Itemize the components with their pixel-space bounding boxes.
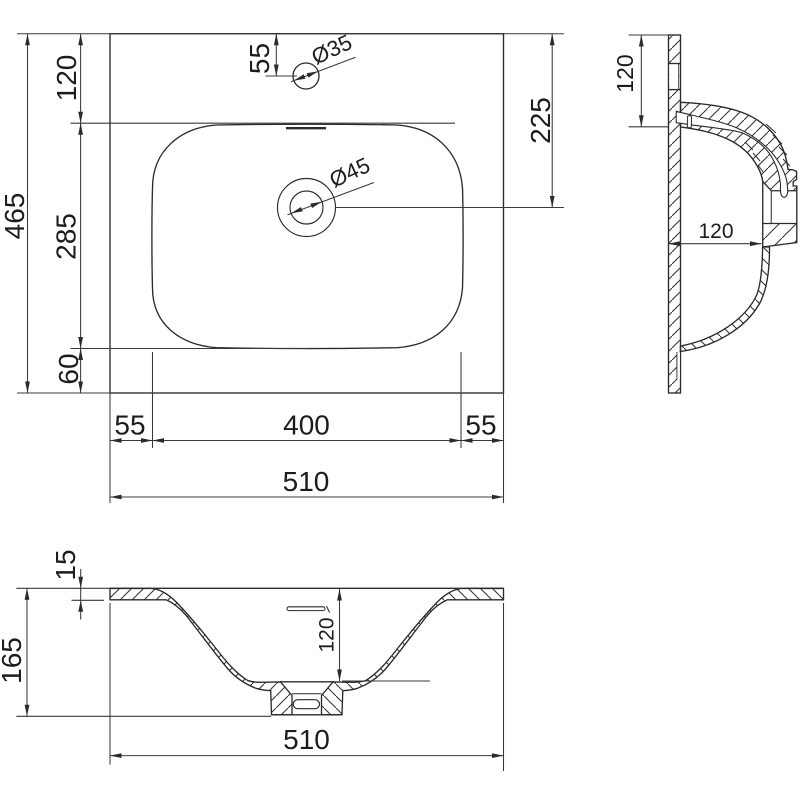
svg-text:165: 165 (0, 637, 27, 684)
svg-text:510: 510 (283, 466, 330, 497)
svg-text:Ø35: Ø35 (308, 29, 356, 69)
svg-text:120: 120 (612, 54, 638, 92)
svg-text:400: 400 (283, 410, 330, 441)
svg-text:55: 55 (244, 43, 275, 74)
svg-text:225: 225 (525, 97, 556, 144)
svg-text:120: 120 (698, 220, 733, 243)
svg-text:510: 510 (283, 724, 330, 755)
svg-text:55: 55 (465, 410, 496, 441)
svg-text:465: 465 (0, 193, 30, 240)
svg-text:120: 120 (51, 55, 82, 102)
svg-text:15: 15 (50, 549, 81, 580)
svg-text:Ø45: Ø45 (326, 152, 374, 192)
svg-text:55: 55 (114, 410, 145, 441)
svg-text:120: 120 (316, 617, 339, 652)
svg-text:60: 60 (53, 353, 84, 384)
svg-text:285: 285 (51, 213, 82, 260)
